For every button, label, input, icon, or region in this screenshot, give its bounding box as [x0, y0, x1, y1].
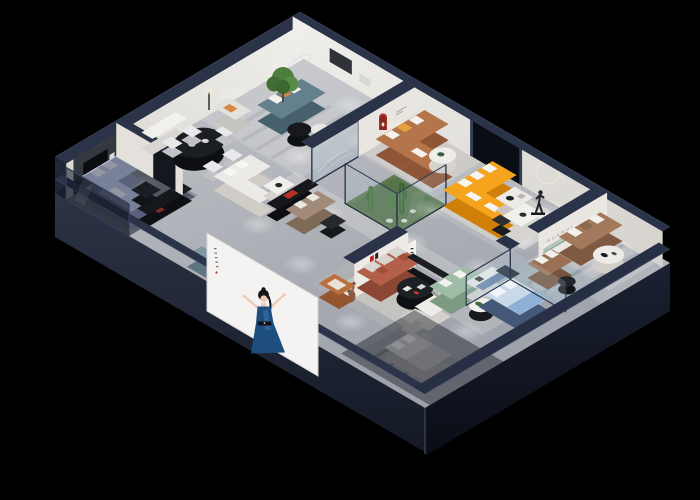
arched-niche-red-2 — [379, 114, 387, 131]
showroom-render: 华辉 — [0, 0, 700, 500]
showroom-svg: 华辉 — [0, 0, 700, 500]
model-face — [260, 295, 267, 302]
poster-red-seal — [215, 271, 217, 273]
